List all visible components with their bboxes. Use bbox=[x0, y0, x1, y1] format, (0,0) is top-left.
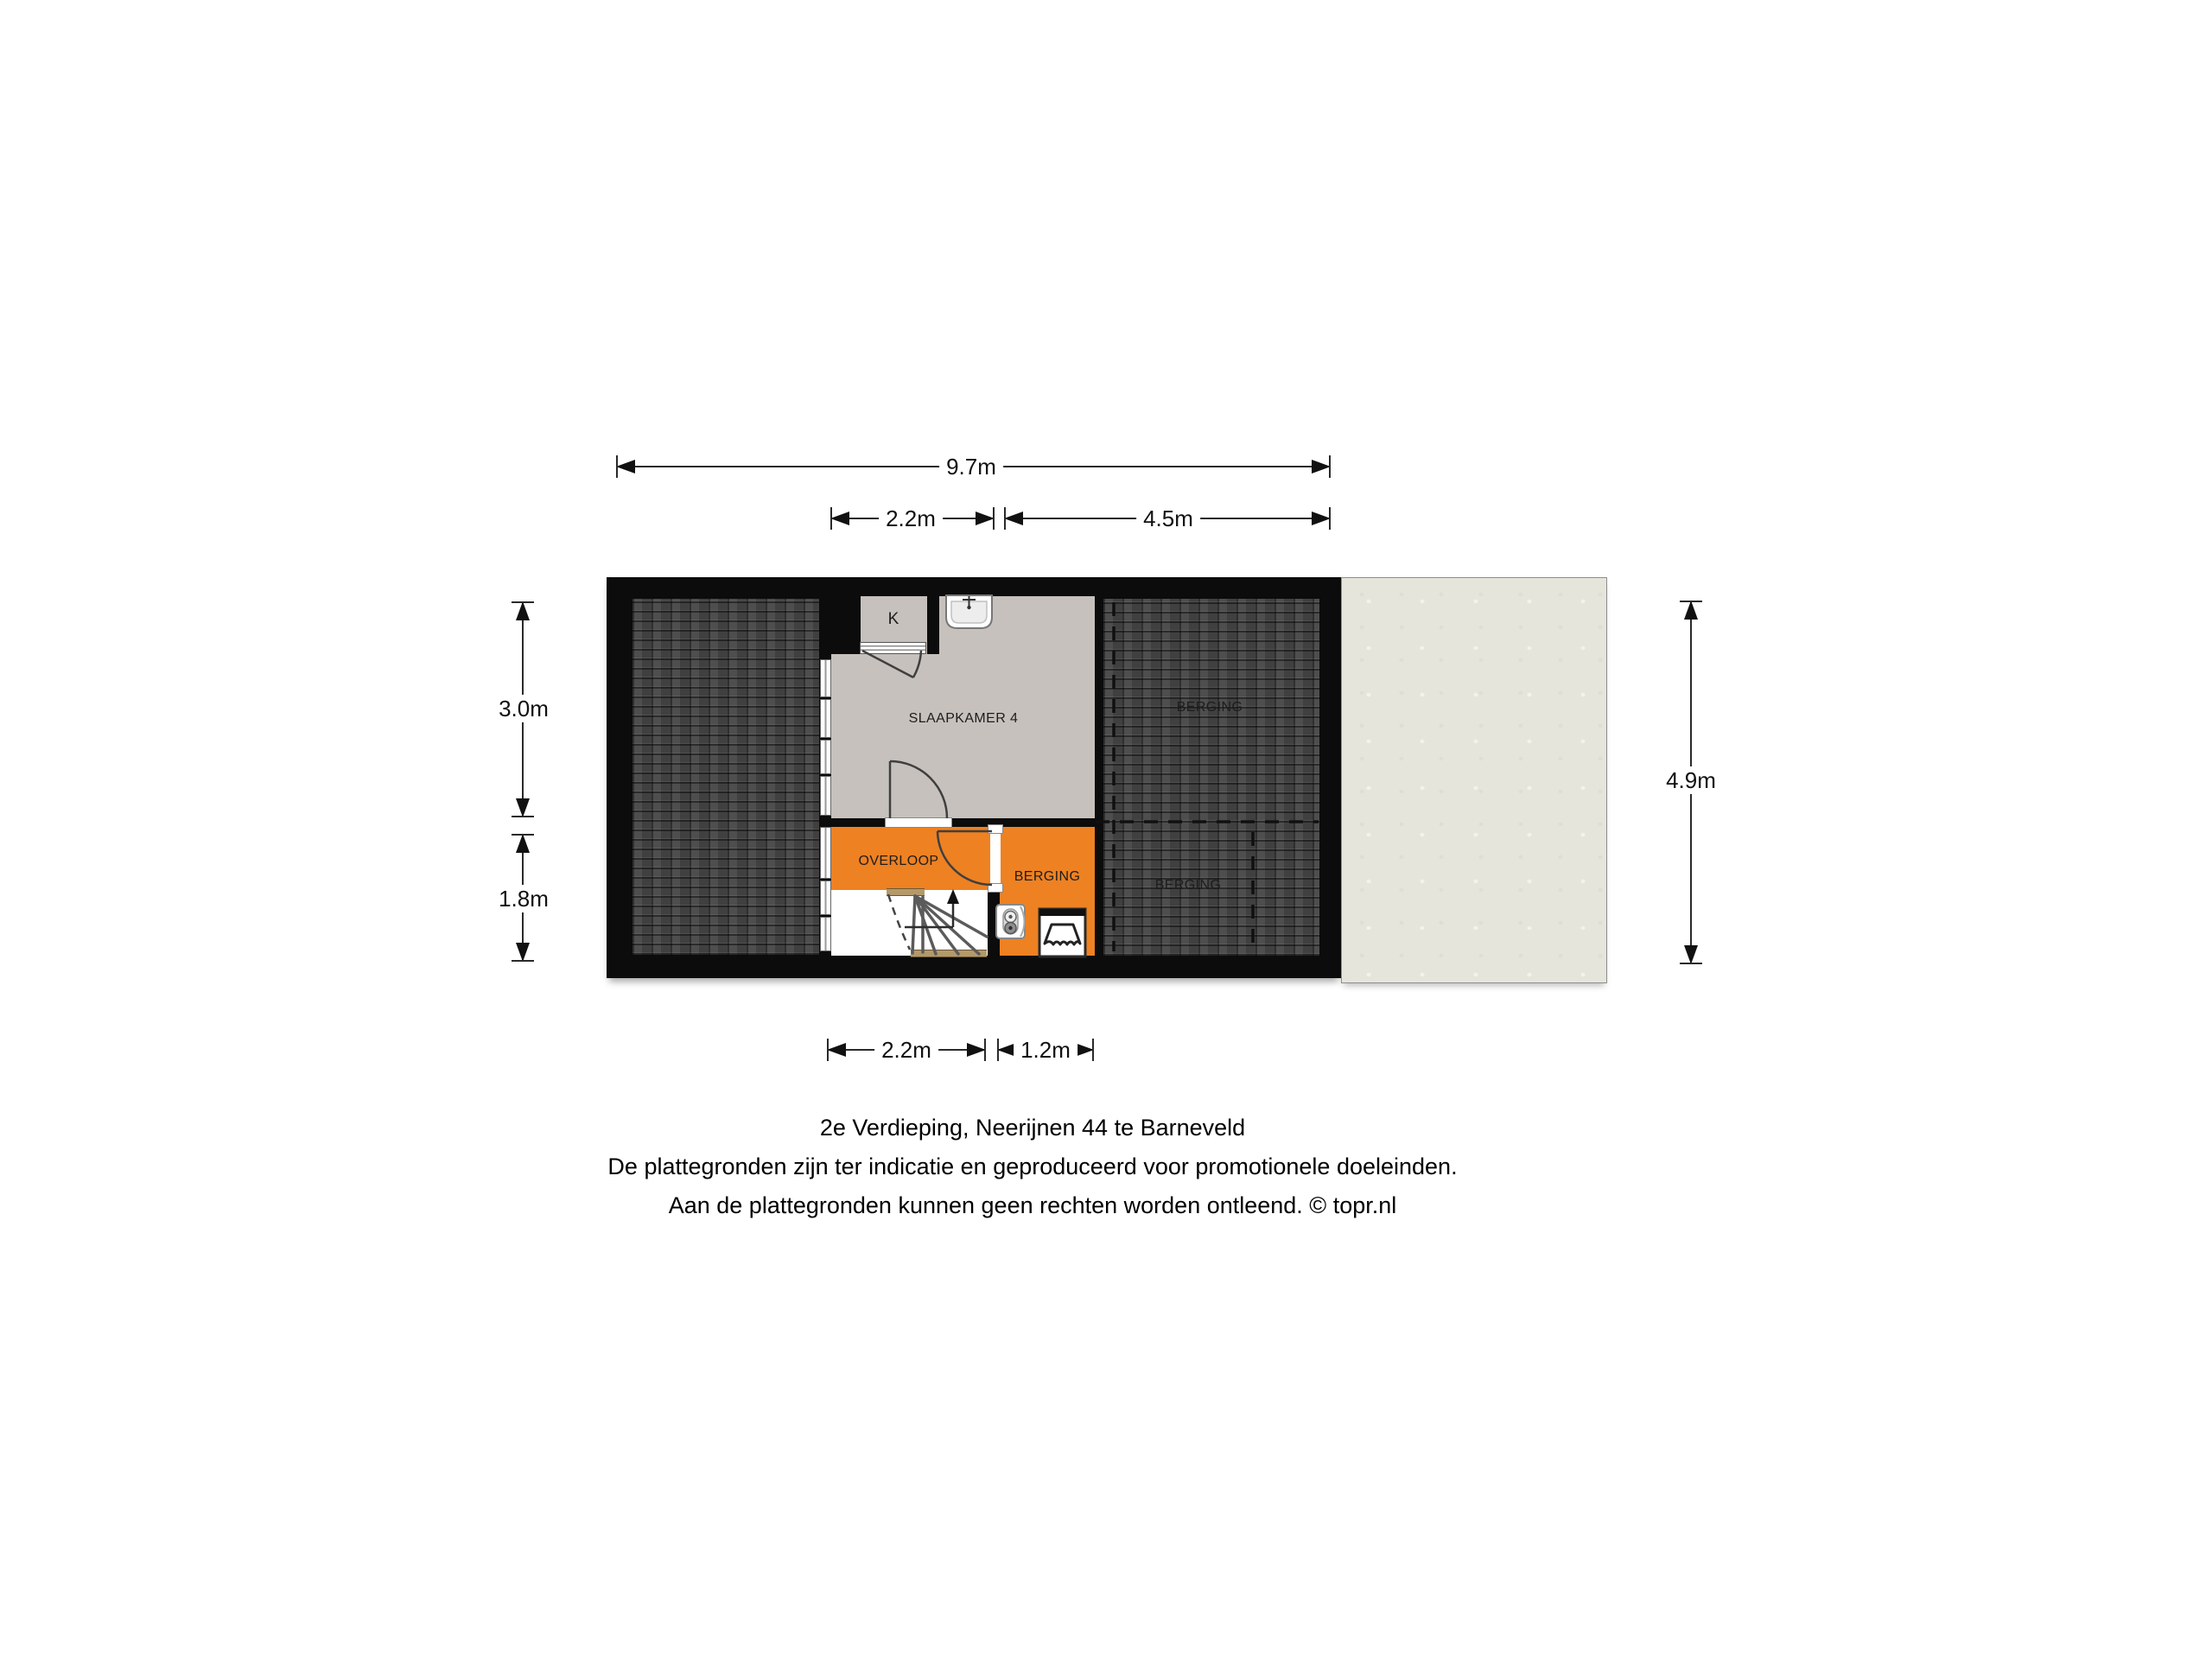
dimension-lines bbox=[512, 455, 1702, 1061]
dim-bottom-right-width: 1.2m bbox=[1014, 1036, 1077, 1064]
dim-left-upper-height: 3.0m bbox=[492, 695, 556, 722]
caption-disclaimer-2: Aan de plattegronden kunnen geen rechten… bbox=[607, 1186, 1457, 1225]
door-swing-arc bbox=[890, 761, 947, 818]
door-swing-arc bbox=[938, 831, 992, 885]
boiler-icon bbox=[996, 905, 1025, 938]
dim-top-left-width: 2.2m bbox=[879, 505, 943, 532]
dim-bottom-left-width: 2.2m bbox=[874, 1036, 938, 1064]
dim-right-height: 4.9m bbox=[1659, 766, 1723, 794]
door-swing-arc bbox=[862, 651, 921, 677]
caption: 2e Verdieping, Neerijnen 44 te Barneveld… bbox=[607, 1109, 1457, 1225]
dim-left-lower-height: 1.8m bbox=[492, 885, 556, 912]
dim-total-width: 9.7m bbox=[939, 453, 1003, 480]
caption-disclaimer-1: De plattegronden zijn ter indicatie en g… bbox=[607, 1147, 1457, 1186]
stair-walkline-dashed bbox=[888, 894, 910, 950]
sink-icon bbox=[946, 595, 992, 628]
stair-treads bbox=[912, 896, 987, 954]
dim-top-right-width: 4.5m bbox=[1136, 505, 1200, 532]
knee-height-dashed-lines bbox=[1096, 602, 1319, 951]
plan-linework bbox=[0, 0, 2212, 1659]
caption-title: 2e Verdieping, Neerijnen 44 te Barneveld bbox=[607, 1109, 1457, 1147]
floorplan-page: SLAAPKAMER 4 OVERLOOP BERGING BERGING BE… bbox=[0, 0, 2212, 1659]
cv-unit-icon bbox=[1039, 909, 1085, 957]
